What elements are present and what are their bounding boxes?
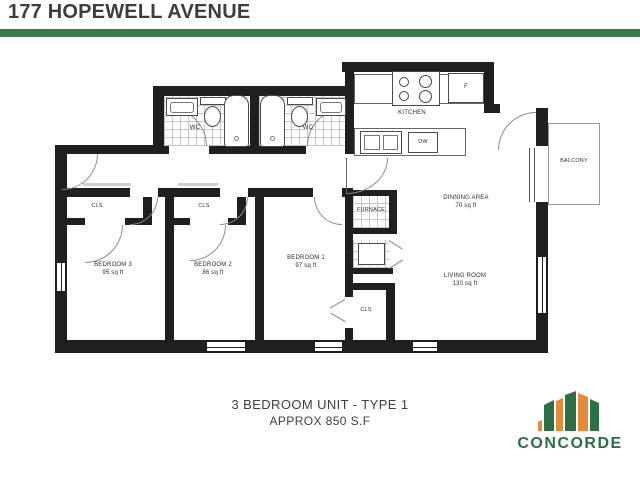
wall xyxy=(484,104,500,113)
sink-basin xyxy=(170,102,194,113)
wall xyxy=(259,146,306,154)
room-label-balcony: BALCONY xyxy=(548,158,600,165)
kitchen-door-arc xyxy=(346,158,388,194)
toilet-tank xyxy=(287,97,313,105)
bedroom1-name: BEDROOM 1 xyxy=(260,255,352,263)
bedroom1-door-arc xyxy=(314,197,342,225)
room-label-furnace: FURNACE xyxy=(345,207,397,214)
dining-area: 70 sq ft xyxy=(424,203,508,211)
bathtub-drain xyxy=(270,136,275,141)
window xyxy=(55,263,67,291)
bedroom2-closet-door-arc xyxy=(190,225,226,261)
bedroom3-name: BEDROOM 3 xyxy=(67,262,159,270)
room-label-living: LIVING ROOM 130 sq ft xyxy=(423,273,507,289)
toilet-bowl xyxy=(291,106,308,127)
stove-burner xyxy=(399,91,409,101)
dining-name: DINNING AREA xyxy=(424,195,508,203)
toilet-bowl xyxy=(204,106,221,127)
wall xyxy=(245,340,315,353)
bedroom1-area: 97 sq ft xyxy=(260,263,352,271)
room-label-closet-bedroom1: CLS xyxy=(346,307,386,314)
wall xyxy=(536,202,548,257)
concorde-logo: CONCORDE xyxy=(500,383,640,455)
washer-dryer-unit xyxy=(358,243,385,265)
wall xyxy=(536,108,548,146)
window xyxy=(315,340,342,353)
wall xyxy=(437,340,548,353)
balcony-sliding-door xyxy=(529,148,535,202)
concorde-logo-text: CONCORDE xyxy=(517,435,622,452)
window xyxy=(207,340,245,353)
stove-burner xyxy=(419,75,432,88)
window xyxy=(536,257,548,313)
bedroom3-area: 95 sq ft xyxy=(67,270,159,278)
stove xyxy=(392,71,440,106)
room-label-wc-left: WC xyxy=(180,125,210,133)
wall xyxy=(55,340,207,353)
room-label-bedroom3: BEDROOM 3 95 sq ft xyxy=(67,262,159,278)
window xyxy=(413,340,437,353)
stove-burner xyxy=(399,77,409,87)
kitchen-sink-basin xyxy=(383,135,398,150)
room-label-wc-right: WC xyxy=(293,125,323,133)
closet1-bifold-door xyxy=(330,313,345,322)
living-area: 130 sq ft xyxy=(423,281,507,289)
room-label-kitchen: KITCHEN xyxy=(372,110,452,118)
concorde-logo-icon: CONCORDE xyxy=(500,383,640,455)
bathtub-drain xyxy=(234,136,239,141)
washer-dryer-bifold-door xyxy=(388,240,402,249)
room-label-closet-bedroom2: CLS xyxy=(184,203,224,210)
wall xyxy=(386,283,395,340)
wall-shadow xyxy=(178,183,218,186)
toilet-tank xyxy=(200,97,226,105)
wall xyxy=(209,146,250,154)
dishwasher-label: DW xyxy=(408,139,438,146)
bedroom3-closet-door-arc xyxy=(85,225,123,263)
bedroom2-area: 86 sq ft xyxy=(167,270,259,278)
wall xyxy=(153,86,164,154)
room-label-closet-bedroom3: CLS xyxy=(77,203,117,210)
wall xyxy=(345,86,354,154)
room-label-bedroom2: BEDROOM 2 86 sq ft xyxy=(167,262,259,278)
bedroom2-name: BEDROOM 2 xyxy=(167,262,259,270)
wall xyxy=(342,340,413,353)
kitchen-sink-basin xyxy=(364,135,380,150)
fridge-label: F xyxy=(448,84,484,92)
stove-burner xyxy=(419,90,432,103)
room-label-dining: DINNING AREA 70 sq ft xyxy=(424,195,508,211)
living-name: LIVING ROOM xyxy=(423,273,507,281)
washer-dryer-bifold-door xyxy=(389,260,403,269)
room-label-bedroom1: BEDROOM 1 97 sq ft xyxy=(260,255,352,271)
wall xyxy=(153,146,169,154)
wall xyxy=(345,328,353,340)
wall xyxy=(174,218,190,225)
wall xyxy=(250,86,259,154)
wall xyxy=(67,218,85,225)
wall xyxy=(536,313,548,353)
closet1-bifold-door xyxy=(330,299,345,308)
bedroom3-door-arc xyxy=(130,197,158,225)
sink-basin xyxy=(320,102,342,113)
wall xyxy=(345,146,354,154)
balcony-door-arc xyxy=(498,112,536,150)
wall-shadow xyxy=(83,183,131,186)
floor-plan-page: 177 HOPEWELL AVENUE xyxy=(0,0,640,480)
wall xyxy=(55,145,158,154)
